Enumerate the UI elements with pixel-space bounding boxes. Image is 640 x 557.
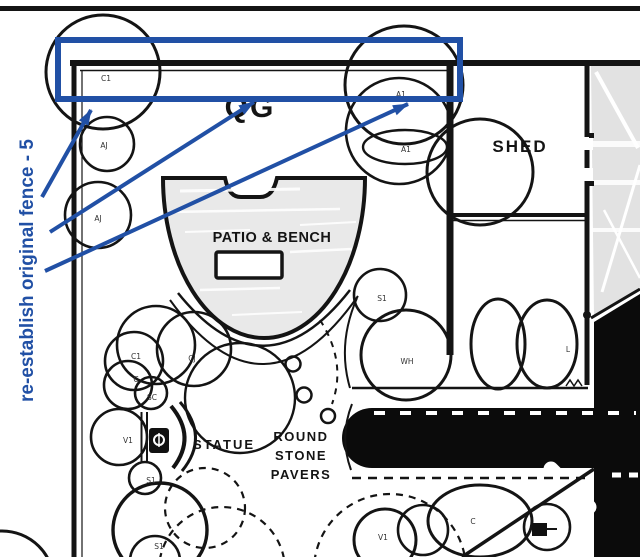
pavers-label: ROUND STONE PAVERS xyxy=(271,429,332,482)
wall-dot xyxy=(583,311,591,319)
plant-tag: C1 xyxy=(101,74,111,83)
hedge-band-horizontal xyxy=(342,408,640,468)
shed-door-gap xyxy=(582,168,593,181)
plant-tag: WH xyxy=(400,357,413,366)
initials-label: QG xyxy=(225,91,276,124)
pavers-label-line1: ROUND xyxy=(273,429,328,444)
sheet-border-top xyxy=(0,6,640,11)
bench xyxy=(216,252,282,278)
door-jamb xyxy=(589,133,594,138)
plant-tag: S1 xyxy=(377,294,387,303)
shed-door-gap xyxy=(582,137,593,150)
plant-tag: CJ xyxy=(188,354,195,363)
plant-tag: S1 xyxy=(154,542,164,551)
pavers-label-line3: PAVERS xyxy=(271,467,332,482)
plant-tag: C xyxy=(470,517,475,526)
plant-tag: A1 xyxy=(401,145,411,154)
plant-tag: AJ xyxy=(100,141,107,150)
bed-squiggle xyxy=(566,380,582,386)
bed-marker xyxy=(532,523,547,536)
plant-tag: S1 xyxy=(146,476,156,485)
shed-label: SHED xyxy=(492,137,547,156)
plant-tag: C1 xyxy=(131,352,141,361)
annotation-note: re-establish original fence - 5 xyxy=(17,139,38,402)
door-jamb xyxy=(589,181,594,186)
plant-tag: L xyxy=(566,345,571,354)
plant-tag: SC xyxy=(147,393,157,402)
plant-tag: C xyxy=(133,375,138,384)
plant-tag: AJ xyxy=(94,214,101,223)
plant-tag: V1 xyxy=(123,436,133,445)
plan-drawing: QG SHED PATIO & BENCH STATUE ROUND STONE… xyxy=(0,0,640,557)
pavers-label-line2: STONE xyxy=(275,448,327,463)
plant-tag: V1 xyxy=(378,533,388,542)
statue-label: STATUE xyxy=(193,437,255,452)
patio-label: PATIO & BENCH xyxy=(213,230,332,246)
landscape-plan-page: QG SHED PATIO & BENCH STATUE ROUND STONE… xyxy=(0,0,640,557)
statue-group xyxy=(142,402,196,471)
